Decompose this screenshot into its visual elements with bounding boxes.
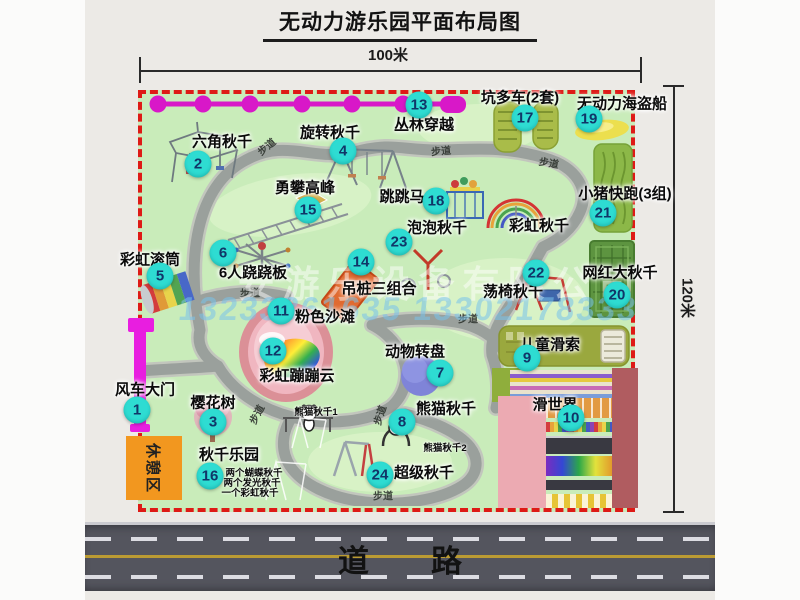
slide-pink-deck [498, 396, 546, 508]
slide-world-block [492, 368, 638, 510]
slide-rainbow-slide [546, 456, 612, 476]
slide-rainbow-strip [546, 422, 612, 432]
watermark-phone: 13233861635 13302178333 [177, 290, 640, 328]
top-dimension-line [140, 70, 641, 72]
right-dimension-tick-top [663, 85, 684, 87]
plan-title: 无动力游乐园平面布局图 [263, 6, 537, 42]
playground-plan-image: 无动力游乐园平面布局图 100米 120米 [0, 0, 800, 600]
right-dimension-tick-bottom [663, 511, 684, 513]
rest-area-block: 休憩区 [126, 436, 182, 500]
right-dimension-line [673, 86, 675, 513]
slide-maroon-wall [612, 368, 638, 508]
top-dimension-tick-left [139, 57, 141, 83]
top-dimension-tick-right [640, 57, 642, 83]
road: 道 路 [85, 522, 715, 591]
slide-dark-deck-2 [546, 480, 612, 490]
slide-orange-deck [546, 398, 612, 418]
top-dimension-label: 100米 [368, 44, 408, 65]
right-dimension-label: 120米 [678, 278, 699, 318]
slide-dark-deck-1 [546, 436, 612, 454]
slide-yellow-wave [546, 494, 612, 508]
road-label: 道 路 [85, 525, 715, 591]
rest-area-label: 休憩区 [143, 442, 164, 493]
